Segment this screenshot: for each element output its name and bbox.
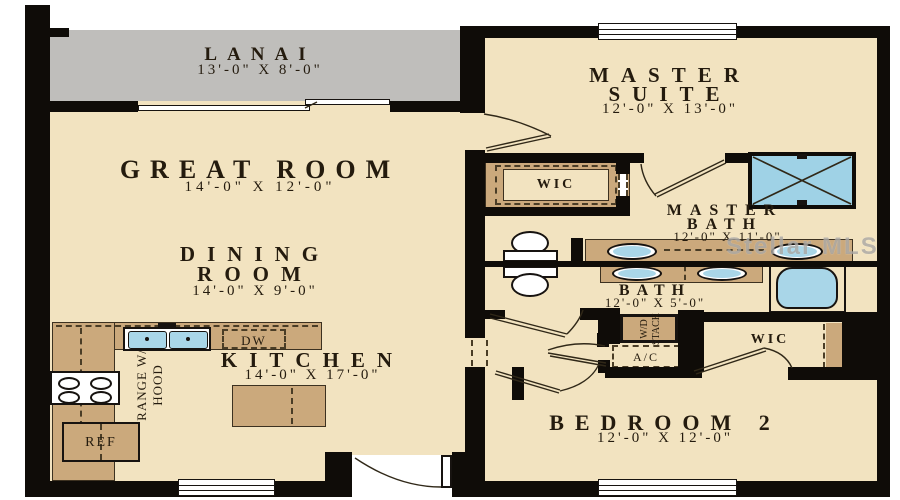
lanai-slider-panel-b <box>305 99 390 105</box>
burner-icon <box>58 377 80 390</box>
kitchen-window <box>178 479 275 496</box>
bath-south-wall-a <box>485 310 505 319</box>
bedroom2-dims: 12'-0" X 12'-0" <box>545 431 785 446</box>
lanai-notch <box>45 28 69 37</box>
center-wall-c <box>465 310 485 338</box>
island-dashes <box>291 388 293 424</box>
dishwasher-label: DW <box>222 334 286 347</box>
left-wall <box>25 5 50 497</box>
bath-sink-left-basin <box>618 269 656 278</box>
sink-faucet-icon <box>158 323 176 328</box>
bedroom2-wic-label: WIC <box>730 333 810 347</box>
center-wall-a <box>460 30 485 113</box>
hall-stub-a <box>580 308 605 320</box>
master-wic-bifold <box>618 174 628 196</box>
toilet-nook-stub <box>571 238 583 263</box>
dining-room-label-2: ROOM <box>155 264 355 285</box>
bath-plumbing-wall <box>485 261 877 267</box>
hall-stub-b <box>597 333 609 347</box>
kitchen-dims: 14'-0" X 17'-0" <box>195 368 430 383</box>
bathtub <box>776 267 838 309</box>
range <box>50 371 120 405</box>
entry-alcove <box>352 455 452 497</box>
hall-opening-dashes <box>486 340 488 366</box>
master-wic-bottom-wall <box>485 207 630 216</box>
master-bath-wall-stub-b <box>725 153 750 163</box>
dining-room-dims: 14'-0" X 9'-0" <box>140 284 370 299</box>
master-wic-top-wall <box>485 153 630 163</box>
burner-icon <box>58 391 80 404</box>
bedroom2-nw-stub <box>512 367 524 400</box>
shower-head-icon <box>797 154 807 159</box>
toilet-bowl <box>511 273 549 297</box>
master-wic-label: WIC <box>503 178 609 192</box>
great-room-dims: 14'-0" X 12'-0" <box>130 180 390 195</box>
master-sink-left-basin <box>613 246 651 257</box>
bedroom2-wic-shelf <box>826 323 843 368</box>
sink-drain-dot <box>145 337 149 341</box>
entry-door-leaf <box>441 455 452 488</box>
bath-sink-right-basin <box>703 269 741 278</box>
lanai-bottom-wall-a <box>25 101 138 112</box>
floor-plan: DW REF RANGE W/ HOOD WIC W/D STACK <box>0 0 900 500</box>
lanai-slider-panel-a <box>138 105 310 111</box>
burner-icon <box>90 377 112 390</box>
bedroom2-wic-bottom-wall <box>788 367 844 380</box>
master-door-opening <box>465 113 487 150</box>
mls-watermark: Stellar MLS <box>726 233 879 261</box>
master-suite-window <box>598 23 737 40</box>
entry-jamb-left <box>325 452 352 483</box>
lanai-bottom-wall-b <box>390 101 465 112</box>
bedroom2-wic-rod-dashes <box>823 324 825 368</box>
right-wall <box>877 26 890 497</box>
bath-dims: 12'-0" X 5'-0" <box>570 296 740 309</box>
master-wic-jamb-bottom <box>616 196 630 207</box>
bedroom2-wic-right-wall <box>842 312 877 380</box>
ac-bottom-wall <box>605 367 702 378</box>
bath-vanity-dashes <box>684 266 686 280</box>
bedroom2-window <box>598 479 737 496</box>
sink-drain-dot <box>186 337 190 341</box>
master-wic-jamb-top <box>616 163 630 174</box>
master-suite-dims: 12'-0" X 13'-0" <box>555 102 785 117</box>
burner-icon <box>90 391 112 404</box>
lanai-dims: 13'-0" X 8'-0" <box>150 63 370 78</box>
kitchen-island <box>232 385 326 427</box>
hall-stub-c <box>598 360 610 373</box>
ac-label: A/C <box>612 351 680 363</box>
center-wall-b <box>465 150 485 310</box>
master-bath-wall-stub-a <box>630 153 644 163</box>
entry-jamb-right <box>452 452 478 483</box>
refrigerator-label: REF <box>62 436 140 450</box>
hall-opening-dashes <box>471 340 473 366</box>
